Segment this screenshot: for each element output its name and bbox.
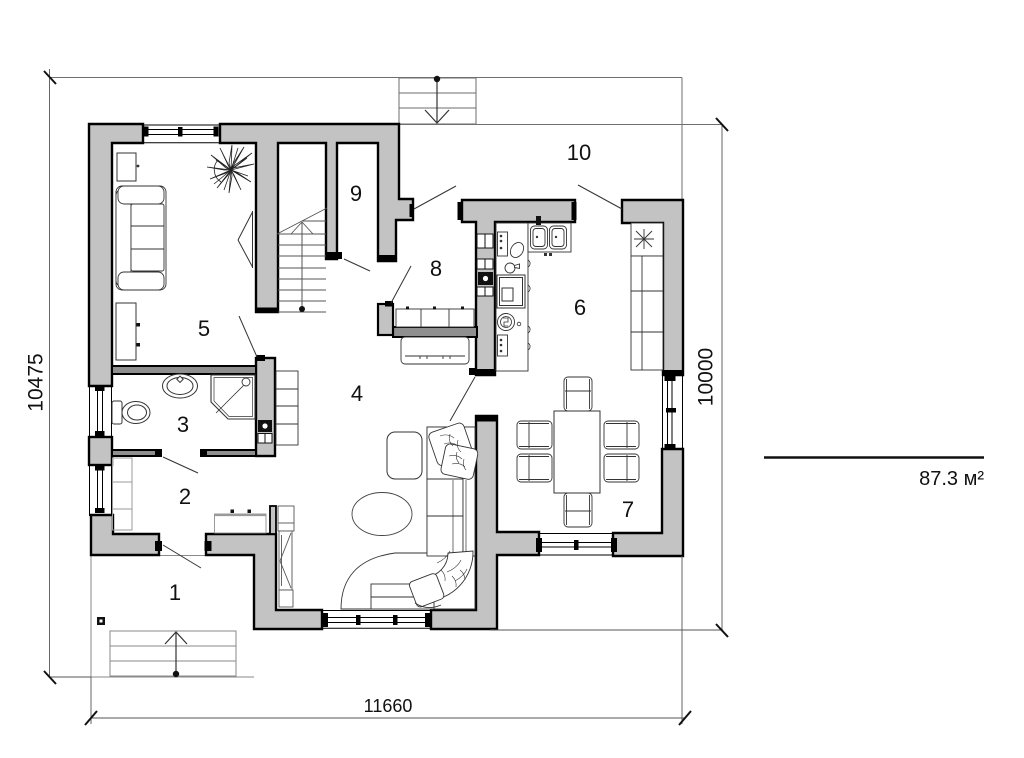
svg-text:2: 2 (179, 484, 191, 509)
svg-text:8: 8 (430, 256, 442, 281)
svg-text:10475: 10475 (25, 353, 48, 411)
svg-text:87.3 м²: 87.3 м² (919, 468, 984, 490)
svg-text:6: 6 (574, 295, 586, 320)
svg-text:5: 5 (198, 316, 210, 341)
svg-text:1: 1 (169, 580, 181, 605)
svg-text:7: 7 (622, 497, 634, 522)
svg-text:3: 3 (177, 412, 189, 437)
svg-text:10: 10 (567, 140, 591, 165)
svg-text:9: 9 (350, 181, 362, 206)
svg-text:11660: 11660 (364, 696, 413, 716)
svg-text:10000: 10000 (695, 348, 718, 406)
svg-text:4: 4 (351, 381, 363, 406)
